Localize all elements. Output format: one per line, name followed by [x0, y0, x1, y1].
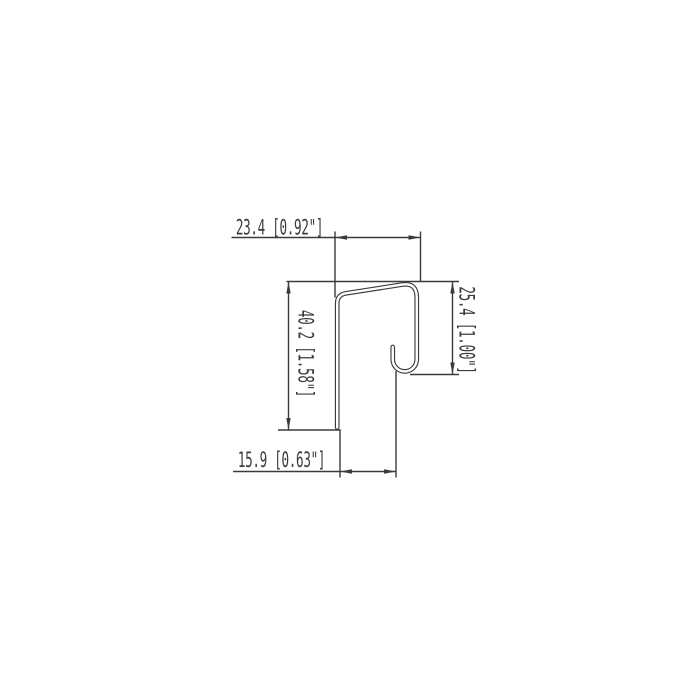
dimension-labels: 23.4 [0.92"] 40.2 [1.58"] 25.4 [1.00"] 1…: [236, 216, 478, 473]
arrow-left-icon: [340, 469, 352, 473]
profile-core: [337, 284, 417, 427]
profile-outline: [337, 284, 417, 427]
profile-drawing: 23.4 [0.92"] 40.2 [1.58"] 25.4 [1.00"] 1…: [0, 0, 700, 700]
arrow-up-icon: [286, 282, 290, 294]
dim-left-label: 40.2 [1.58"]: [292, 310, 316, 397]
dim-right-label: 25.4 [1.00"]: [453, 286, 477, 373]
arrow-right-icon: [409, 235, 421, 239]
arrow-right-icon: [384, 469, 396, 473]
arrow-left-icon: [335, 235, 347, 239]
dim-top-label: 23.4 [0.92"]: [236, 216, 323, 240]
dim-bottom-label: 15.9 [0.63"]: [238, 449, 325, 473]
arrow-down-icon: [286, 418, 290, 430]
drawing-canvas: 23.4 [0.92"] 40.2 [1.58"] 25.4 [1.00"] 1…: [0, 0, 700, 700]
dimension-lines: [232, 232, 460, 478]
